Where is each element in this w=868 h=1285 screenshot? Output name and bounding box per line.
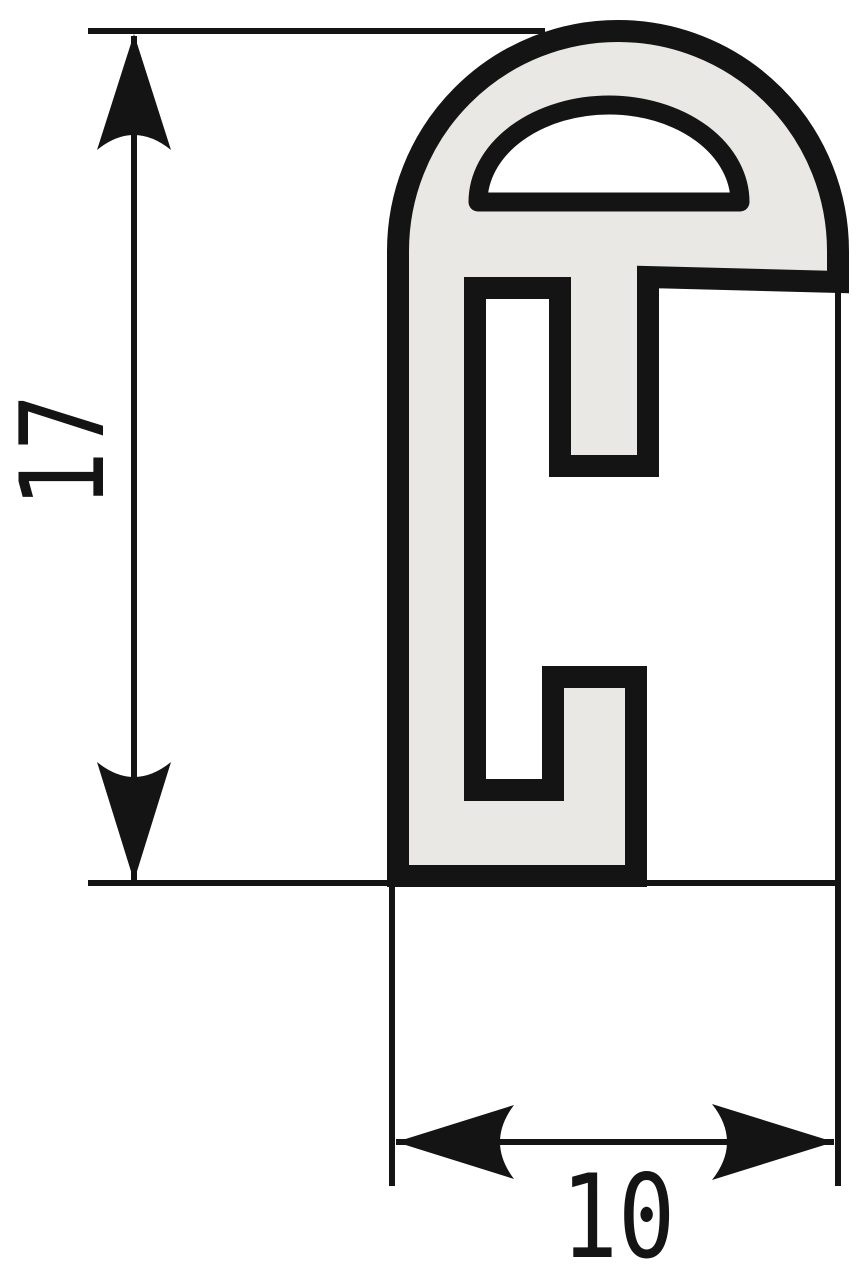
arrowhead-left-icon [396,1105,514,1179]
arrowhead-right-icon [712,1104,834,1180]
technical-drawing-canvas: 17 10 [0,0,868,1280]
profile-drawing-svg [0,0,868,1280]
arrowhead-up-icon [97,34,171,150]
width-dimension-label: 10 [561,1160,676,1276]
height-dimension-label: 17 [6,394,122,509]
arrowhead-down-icon [97,762,171,881]
